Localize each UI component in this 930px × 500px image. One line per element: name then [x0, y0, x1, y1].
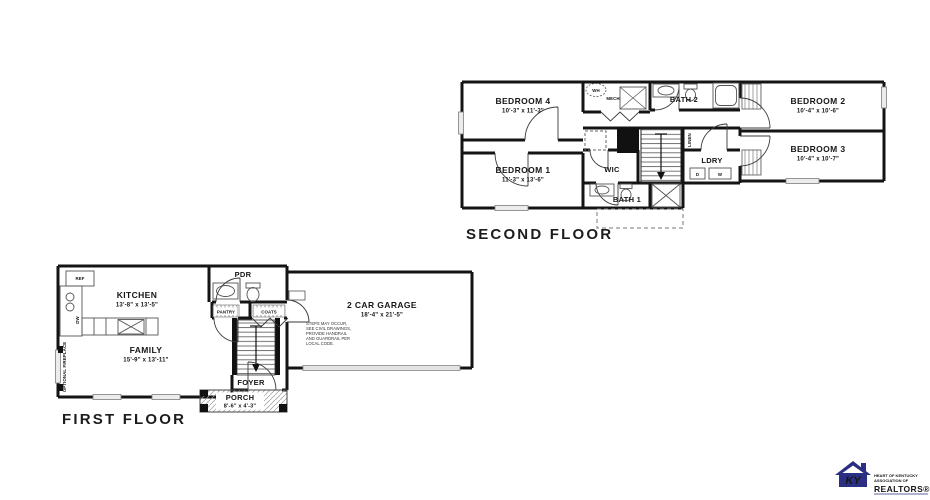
second-floor-stairs [641, 128, 681, 183]
coats-label: COATS [261, 310, 277, 315]
logo-monogram: KY [845, 475, 862, 487]
family-dims: 15'-9" x 13'-11" [123, 358, 168, 364]
bedroom4-dims: 10'-3" x 11'-3" [502, 109, 544, 115]
refrigerator: REF [66, 271, 94, 286]
second-floor-plan: WH MECH D W [459, 82, 887, 228]
bedroom1-dims: 11'-3" x 13'-6" [502, 178, 544, 184]
first-floor-stairs [232, 318, 280, 375]
dashed-closet [585, 131, 606, 150]
first-floor-plan: REF DW PANTRY COATS [56, 266, 473, 412]
bedroom3-dims: 10'-4" x 10'-7" [797, 157, 839, 163]
porch: PORCH 8'-6" x 4'-3" [200, 390, 287, 412]
bedroom2-label: BEDROOM 2 [790, 96, 845, 106]
realtor-logo-graphic: KY HEART OF KENTUCKY ASSOCIATION OF REAL… [834, 457, 930, 499]
kitchen-label: KITCHEN [117, 290, 158, 300]
family-label: FAMILY [130, 345, 163, 355]
garage-label: 2 CAR GARAGE [347, 300, 417, 310]
bedroom3-label: BEDROOM 3 [790, 144, 845, 154]
linen-label: LINEN [687, 133, 692, 147]
realtor-logo: KY HEART OF KENTUCKY ASSOCIATION OF REAL… [834, 457, 930, 499]
garage-note-5: LOCAL CODE. [306, 341, 334, 346]
porch-dims: 8'-6" x 4'-3" [224, 404, 257, 410]
bedroom2-dims: 10'-4" x 10'-6" [797, 109, 839, 115]
dryer-label: D [696, 172, 699, 177]
second-floor-title: SECOND FLOOR [466, 226, 613, 243]
garage-dims: 18'-4" x 21'-5" [361, 313, 403, 319]
kitchen-dims: 13'-8" x 13'-5" [116, 303, 158, 309]
porch-label: PORCH [226, 393, 255, 402]
chase-block [617, 128, 639, 153]
fireplace-note: OPTIONAL FIREPLACE [62, 342, 67, 393]
wh-label: WH [592, 88, 600, 93]
logo-line2: ASSOCIATION OF [874, 478, 909, 483]
house-icon: KY [835, 461, 871, 487]
ldry-label: LDRY [701, 156, 722, 165]
laundry-appliances: D W [690, 168, 731, 179]
first-floor-title: FIRST FLOOR [62, 411, 186, 428]
dishwasher-label: DW [75, 315, 80, 323]
bath2-label: BATH 2 [670, 95, 698, 104]
washer-label: W [718, 172, 723, 177]
floorplan-page: WH MECH D W [0, 0, 930, 500]
pdr-label: PDR [235, 270, 252, 279]
garage-door [303, 366, 460, 371]
garage-step [289, 291, 305, 300]
bedroom1-label: BEDROOM 1 [495, 165, 550, 175]
wic-label: WIC [604, 165, 620, 174]
bath1-label: BATH 1 [613, 195, 641, 204]
foyer-label: FOYER [237, 378, 265, 387]
logo-realtors: REALTORS® [874, 484, 930, 494]
mech-unit: MECH [606, 87, 646, 109]
ref-label: REF [75, 276, 84, 281]
pdr-fixtures [213, 283, 260, 302]
bedroom4-label: BEDROOM 4 [495, 96, 550, 106]
water-heater: WH [586, 84, 606, 97]
mech-label: MECH [606, 96, 619, 101]
logo-text: HEART OF KENTUCKY ASSOCIATION OF REALTOR… [874, 473, 930, 494]
pantry-label: PANTRY [217, 310, 235, 315]
